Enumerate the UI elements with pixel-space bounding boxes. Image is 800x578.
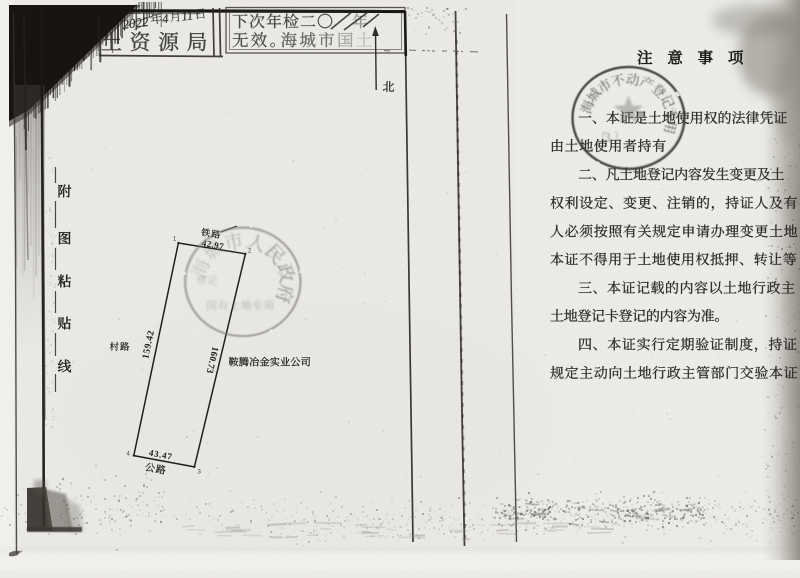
svg-text:11: 11 — [181, 8, 194, 23]
